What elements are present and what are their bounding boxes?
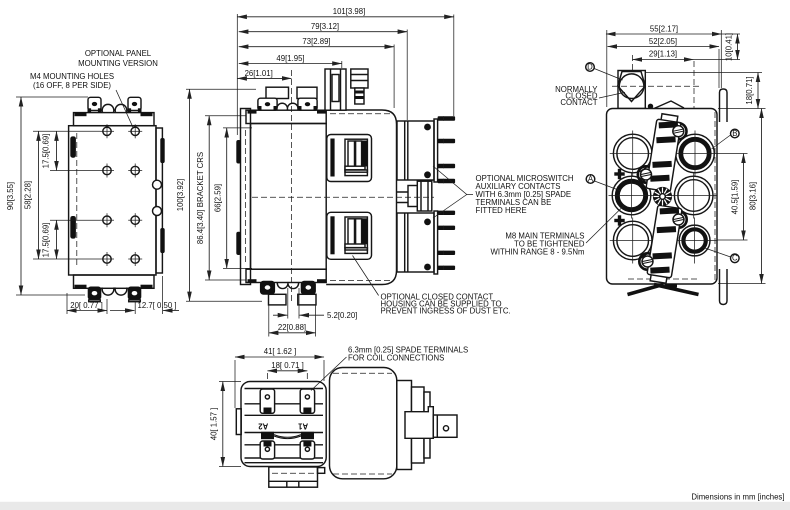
svg-text:(16 OFF, 8 PER SIDE): (16 OFF, 8 PER SIDE) — [33, 81, 111, 90]
svg-text:86.4[3.40] BRACKET CRS: 86.4[3.40] BRACKET CRS — [196, 152, 205, 244]
svg-text:26[1.01]: 26[1.01] — [245, 69, 273, 78]
svg-text:B: B — [732, 129, 737, 138]
svg-text:79[3.12]: 79[3.12] — [311, 22, 339, 31]
svg-text:A: A — [588, 174, 594, 183]
svg-text:40[ 1.57 ]: 40[ 1.57 ] — [210, 408, 219, 441]
svg-text:A2: A2 — [258, 422, 269, 431]
svg-text:PREVENT INGRESS OF DUST ETC.: PREVENT INGRESS OF DUST ETC. — [381, 307, 511, 316]
svg-text:55[2.17]: 55[2.17] — [650, 25, 678, 34]
svg-text:40.5[1.59]: 40.5[1.59] — [731, 180, 740, 215]
svg-text:73[2.89]: 73[2.89] — [302, 37, 330, 46]
svg-text:17.5[0.69]: 17.5[0.69] — [42, 223, 51, 258]
svg-text:M4 MOUNTING HOLES: M4 MOUNTING HOLES — [30, 72, 114, 81]
svg-text:101[3.98]: 101[3.98] — [333, 7, 366, 16]
svg-text:FITTED HERE: FITTED HERE — [476, 206, 527, 215]
svg-text:90[3.55]: 90[3.55] — [6, 182, 15, 210]
svg-text:12.7[ 0.50 ]: 12.7[ 0.50 ] — [137, 301, 176, 310]
svg-text:10[0.41]: 10[0.41] — [725, 33, 734, 61]
svg-text:OPTIONAL PANEL: OPTIONAL PANEL — [85, 49, 152, 58]
svg-text:52[2.05]: 52[2.05] — [649, 37, 677, 46]
svg-text:18[ 0.71 ]: 18[ 0.71 ] — [271, 361, 304, 370]
svg-text:A1: A1 — [297, 422, 308, 431]
svg-text:41[ 1.62 ]: 41[ 1.62 ] — [264, 347, 297, 356]
svg-text:49[1.95]: 49[1.95] — [276, 54, 304, 63]
svg-text:17.5[0.69]: 17.5[0.69] — [42, 134, 51, 169]
svg-text:58[2.28]: 58[2.28] — [24, 181, 33, 209]
svg-text:20[ 0.77 ]: 20[ 0.77 ] — [70, 301, 103, 310]
svg-text:22[0.88]: 22[0.88] — [278, 323, 306, 332]
svg-text:5.2[0.20]: 5.2[0.20] — [327, 311, 357, 320]
svg-text:D: D — [587, 62, 593, 71]
svg-text:CONTACT: CONTACT — [560, 98, 597, 107]
svg-text:18[0.71]: 18[0.71] — [745, 76, 754, 104]
svg-text:80[3.16]: 80[3.16] — [749, 182, 758, 210]
svg-text:MOUNTING VERSION: MOUNTING VERSION — [78, 59, 158, 68]
svg-text:Dimensions in mm [inches]: Dimensions in mm [inches] — [691, 493, 784, 502]
svg-text:100[3.92]: 100[3.92] — [176, 179, 185, 212]
svg-text:C: C — [732, 254, 738, 263]
svg-text:66[2.59]: 66[2.59] — [213, 184, 222, 212]
svg-text:29[1.13]: 29[1.13] — [649, 50, 677, 59]
svg-text:WITHIN RANGE 8 - 9.5Nm: WITHIN RANGE 8 - 9.5Nm — [490, 248, 584, 257]
svg-text:FOR COIL CONNECTIONS: FOR COIL CONNECTIONS — [348, 354, 444, 363]
